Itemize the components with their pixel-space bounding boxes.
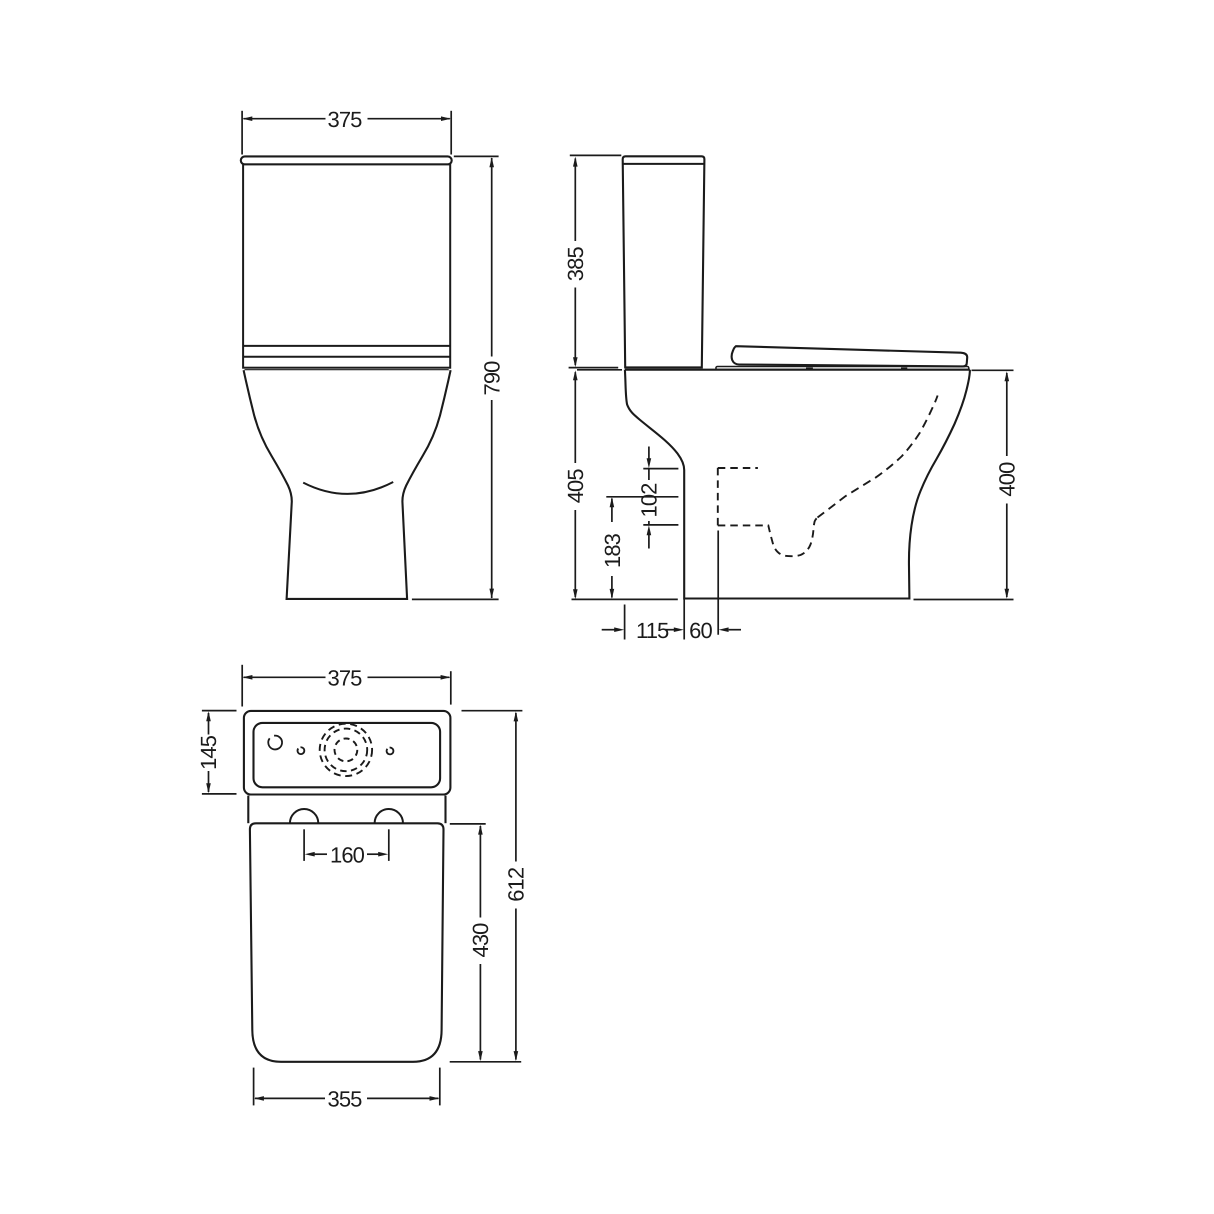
svg-text:102: 102 (636, 483, 661, 518)
svg-text:183: 183 (600, 533, 625, 568)
svg-text:115: 115 (636, 618, 669, 643)
svg-text:612: 612 (504, 867, 529, 902)
svg-text:430: 430 (468, 923, 493, 958)
svg-text:405: 405 (563, 469, 588, 504)
svg-text:790: 790 (479, 361, 504, 396)
svg-text:160: 160 (330, 842, 365, 867)
svg-text:400: 400 (995, 462, 1020, 497)
svg-text:355: 355 (327, 1087, 362, 1112)
svg-text:375: 375 (327, 107, 362, 132)
svg-text:375: 375 (327, 665, 362, 690)
svg-text:145: 145 (196, 735, 221, 770)
svg-text:385: 385 (563, 247, 588, 282)
svg-text:60: 60 (689, 618, 712, 643)
